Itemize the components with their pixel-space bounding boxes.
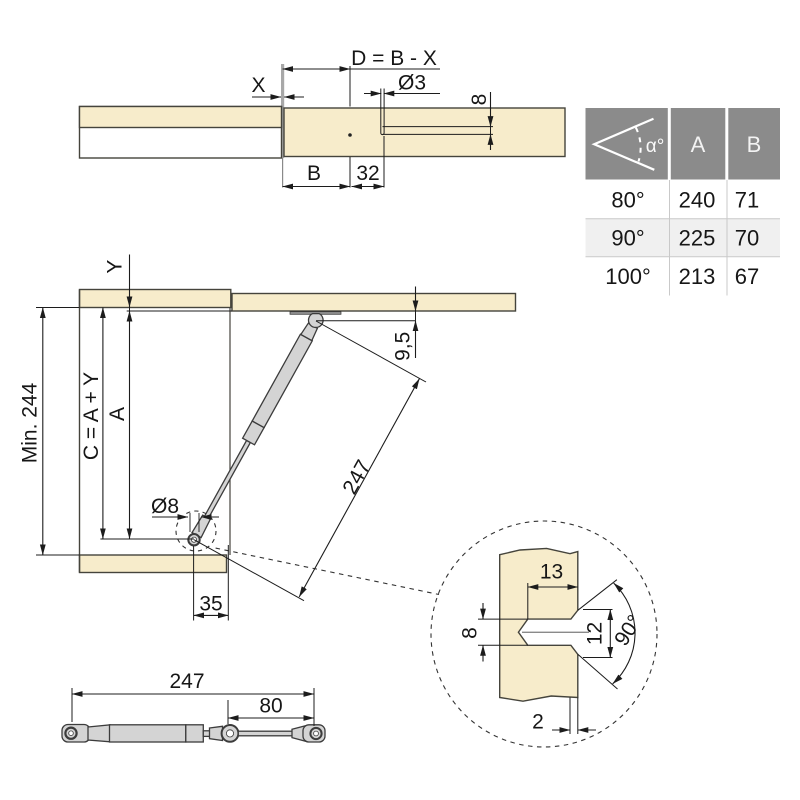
svg-text:90°: 90° — [611, 226, 644, 251]
svg-text:100°: 100° — [605, 264, 651, 289]
svg-text:A: A — [106, 407, 129, 421]
svg-text:Min. 244: Min. 244 — [19, 382, 42, 463]
svg-text:2: 2 — [532, 711, 544, 734]
svg-text:240: 240 — [679, 188, 716, 213]
svg-text:13: 13 — [540, 561, 563, 584]
svg-text:A: A — [691, 132, 706, 157]
svg-text:213: 213 — [679, 264, 716, 289]
svg-text:B: B — [307, 162, 321, 185]
svg-text:32: 32 — [356, 162, 379, 185]
svg-text:71: 71 — [735, 188, 759, 213]
svg-text:C = A + Y: C = A + Y — [80, 372, 103, 460]
svg-text:Ø3: Ø3 — [398, 72, 426, 95]
svg-text:9,5: 9,5 — [392, 332, 415, 361]
svg-text:X: X — [251, 74, 265, 97]
svg-text:67: 67 — [735, 264, 759, 289]
svg-text:Ø8: Ø8 — [151, 495, 179, 518]
svg-text:35: 35 — [199, 593, 222, 616]
svg-text:D = B - X: D = B - X — [351, 47, 437, 70]
svg-text:8: 8 — [468, 94, 491, 106]
svg-text:80: 80 — [259, 695, 282, 718]
svg-text:Y: Y — [104, 260, 127, 274]
svg-text:8: 8 — [459, 627, 482, 639]
svg-text:B: B — [747, 132, 762, 157]
svg-text:70: 70 — [735, 226, 759, 251]
svg-text:12: 12 — [584, 622, 607, 645]
svg-text:247: 247 — [169, 670, 204, 693]
svg-text:225: 225 — [679, 226, 716, 251]
svg-text:80°: 80° — [611, 188, 644, 213]
svg-text:α°: α° — [646, 136, 665, 157]
